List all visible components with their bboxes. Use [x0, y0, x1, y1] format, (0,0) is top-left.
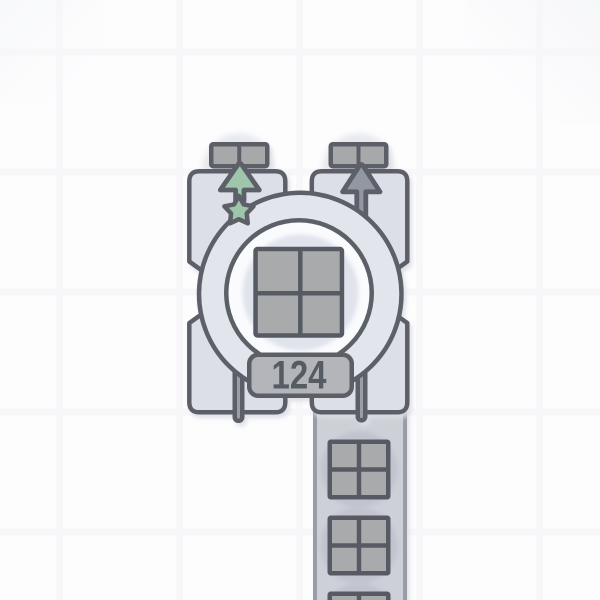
svg-text:124: 124	[272, 354, 327, 398]
